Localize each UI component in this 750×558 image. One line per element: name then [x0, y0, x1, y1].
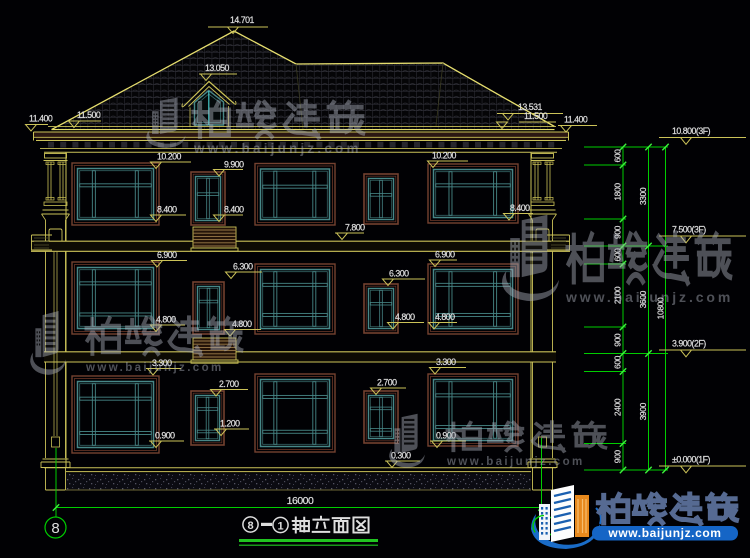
svg-text:1800: 1800	[613, 183, 623, 201]
svg-text:11.500: 11.500	[77, 110, 101, 120]
svg-text:0.900: 0.900	[155, 431, 175, 441]
svg-text:2.700: 2.700	[377, 378, 397, 388]
svg-text:11.400: 11.400	[564, 115, 588, 125]
svg-text:8.400: 8.400	[510, 203, 530, 213]
svg-text:11.500: 11.500	[524, 111, 548, 121]
svg-text:11.400: 11.400	[29, 114, 53, 124]
svg-text:9.900: 9.900	[224, 160, 244, 170]
svg-text:2400: 2400	[613, 398, 623, 416]
svg-text:8: 8	[247, 520, 253, 532]
svg-text:1.200: 1.200	[220, 419, 240, 429]
svg-text:10.200: 10.200	[432, 151, 457, 161]
svg-text:10.200: 10.200	[157, 152, 182, 162]
svg-text:www.baijunjz.com: www.baijunjz.com	[446, 456, 585, 468]
svg-text:14.701: 14.701	[230, 15, 255, 25]
svg-text:6.300: 6.300	[389, 269, 409, 279]
svg-text:8.400: 8.400	[224, 205, 244, 215]
svg-text:1: 1	[277, 521, 283, 533]
svg-text:8.400: 8.400	[157, 205, 177, 215]
svg-text:±0.000(1F): ±0.000(1F)	[672, 455, 711, 465]
svg-text:8: 8	[51, 520, 59, 537]
svg-text:6.300: 6.300	[233, 262, 253, 272]
svg-text:2.700: 2.700	[219, 379, 239, 389]
svg-text:600: 600	[613, 149, 623, 163]
svg-text:3900: 3900	[638, 402, 648, 420]
svg-text:13.050: 13.050	[205, 63, 230, 73]
svg-text:7.800: 7.800	[345, 223, 365, 233]
svg-text:16000: 16000	[287, 495, 314, 507]
svg-text:3.300: 3.300	[436, 357, 456, 367]
svg-text:10.800(3F): 10.800(3F)	[672, 126, 711, 136]
svg-text:900: 900	[613, 450, 623, 464]
svg-text:900: 900	[613, 333, 623, 347]
svg-text:600: 600	[613, 355, 623, 369]
svg-text:6.900: 6.900	[435, 250, 455, 260]
svg-text:6.900: 6.900	[157, 250, 177, 260]
svg-text:www.baijunjz.com: www.baijunjz.com	[85, 362, 224, 374]
svg-text:3300: 3300	[638, 187, 648, 205]
svg-text:4.800: 4.800	[435, 312, 455, 322]
svg-text:4.800: 4.800	[395, 312, 415, 322]
svg-text:3.900(2F): 3.900(2F)	[672, 339, 706, 349]
svg-text:www.baijunjz.com: www.baijunjz.com	[193, 141, 362, 156]
svg-text:www.baijunjz.com: www.baijunjz.com	[565, 289, 733, 305]
svg-text:www.baijunjz.com: www.baijunjz.com	[607, 526, 721, 540]
